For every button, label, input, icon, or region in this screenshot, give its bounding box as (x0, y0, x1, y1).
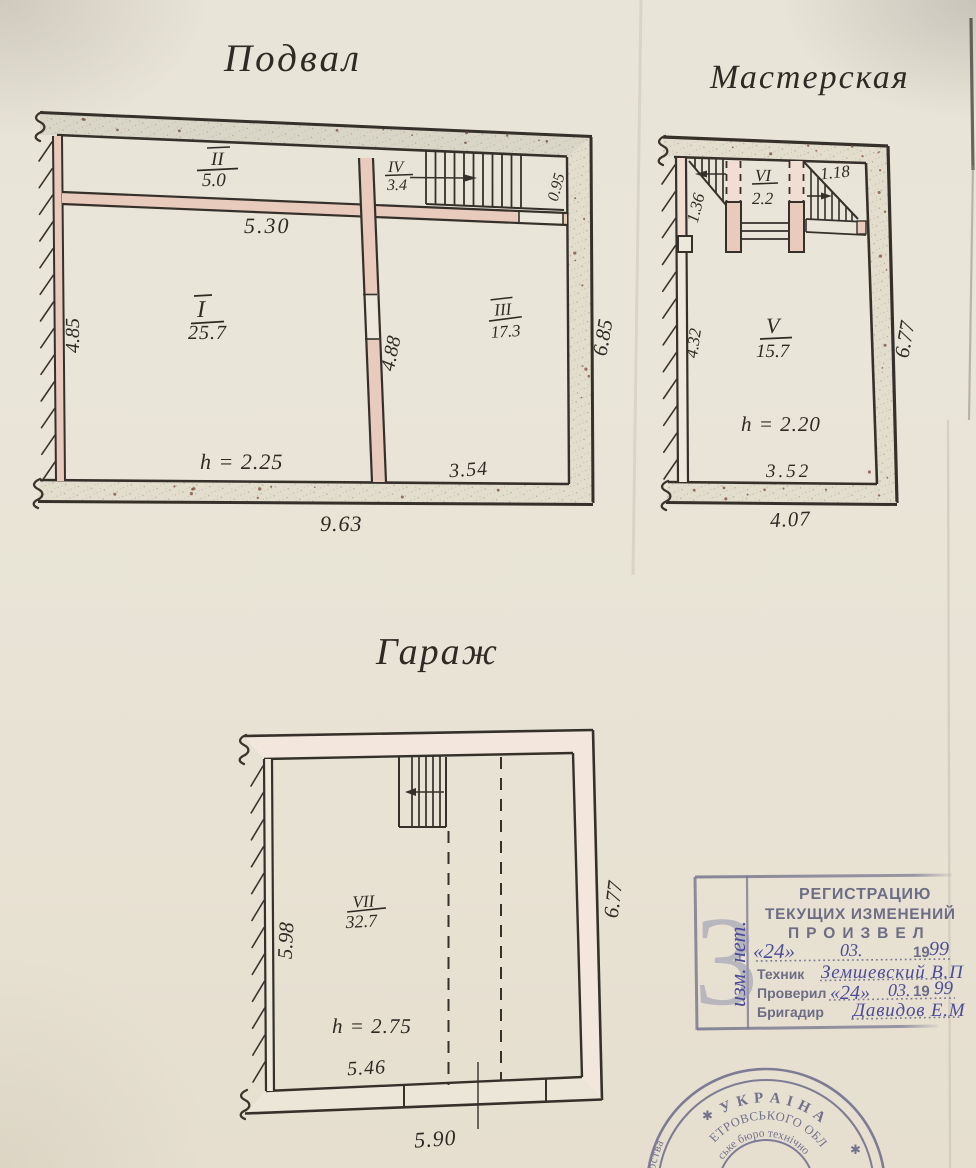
svg-text:✱: ✱ (850, 1142, 861, 1157)
svg-text:99: 99 (934, 978, 954, 999)
svg-text:3.4: 3.4 (386, 177, 407, 194)
svg-text:99: 99 (929, 938, 949, 960)
svg-text:03.: 03. (888, 980, 911, 1000)
svg-text:3.52: 3.52 (765, 461, 811, 482)
svg-text:изм. нет.: изм. нет. (725, 921, 750, 1007)
svg-text:Бригадир: Бригадир (757, 1004, 824, 1020)
svg-text:II: II (210, 149, 225, 170)
svg-text:4.32: 4.32 (682, 327, 705, 360)
svg-text:РЕГИСТРАЦИЮ: РЕГИСТРАЦИЮ (799, 886, 931, 903)
svg-text:5.30: 5.30 (244, 213, 291, 238)
svg-text:15.7: 15.7 (756, 341, 791, 362)
svg-text:32.7: 32.7 (344, 910, 379, 932)
svg-text:Гараж: Гараж (375, 631, 499, 673)
svg-text:19: 19 (913, 983, 930, 1000)
svg-text:IV: IV (387, 159, 405, 176)
svg-text:17.3: 17.3 (490, 321, 521, 342)
svg-text:0.95: 0.95 (545, 172, 569, 203)
svg-text:VI: VI (755, 166, 772, 185)
svg-text:6.77: 6.77 (889, 318, 919, 360)
svg-text:✱: ✱ (702, 1108, 713, 1123)
svg-text:3.54: 3.54 (447, 458, 488, 483)
svg-text:25.7: 25.7 (188, 322, 227, 344)
svg-text:6.85: 6.85 (587, 317, 617, 357)
svg-text:5.46: 5.46 (347, 1056, 387, 1080)
svg-text:19: 19 (913, 944, 930, 961)
svg-text:h = 2.25: h = 2.25 (200, 449, 283, 474)
svg-text:6.77: 6.77 (599, 878, 627, 919)
svg-text:h = 2.20: h = 2.20 (741, 412, 821, 436)
svg-text:h = 2.75: h = 2.75 (332, 1014, 412, 1038)
svg-text:4.07: 4.07 (769, 506, 811, 532)
svg-text:9.63: 9.63 (320, 511, 363, 536)
svg-text:I: I (196, 297, 206, 323)
svg-text:Мастерская: Мастерская (709, 59, 910, 96)
svg-text:1.18: 1.18 (819, 161, 851, 183)
svg-text:Подвал: Подвал (223, 37, 362, 80)
svg-text:03.: 03. (840, 940, 863, 960)
svg-text:Техник: Техник (757, 966, 805, 982)
svg-text:«24»: «24» (753, 939, 795, 963)
svg-text:III: III (493, 299, 514, 319)
svg-text:V: V (766, 313, 782, 338)
svg-text:5.98: 5.98 (273, 921, 299, 959)
svg-text:4.85: 4.85 (62, 318, 84, 353)
svg-text:5.0: 5.0 (202, 170, 226, 191)
svg-text:5.90: 5.90 (413, 1125, 457, 1153)
svg-text:2.2: 2.2 (752, 189, 774, 208)
svg-text:ТЕКУЩИХ ИЗМЕНЕНИЙ: ТЕКУЩИХ ИЗМЕНЕНИЙ (765, 905, 956, 923)
svg-text:Проверил: Проверил (757, 985, 826, 1001)
